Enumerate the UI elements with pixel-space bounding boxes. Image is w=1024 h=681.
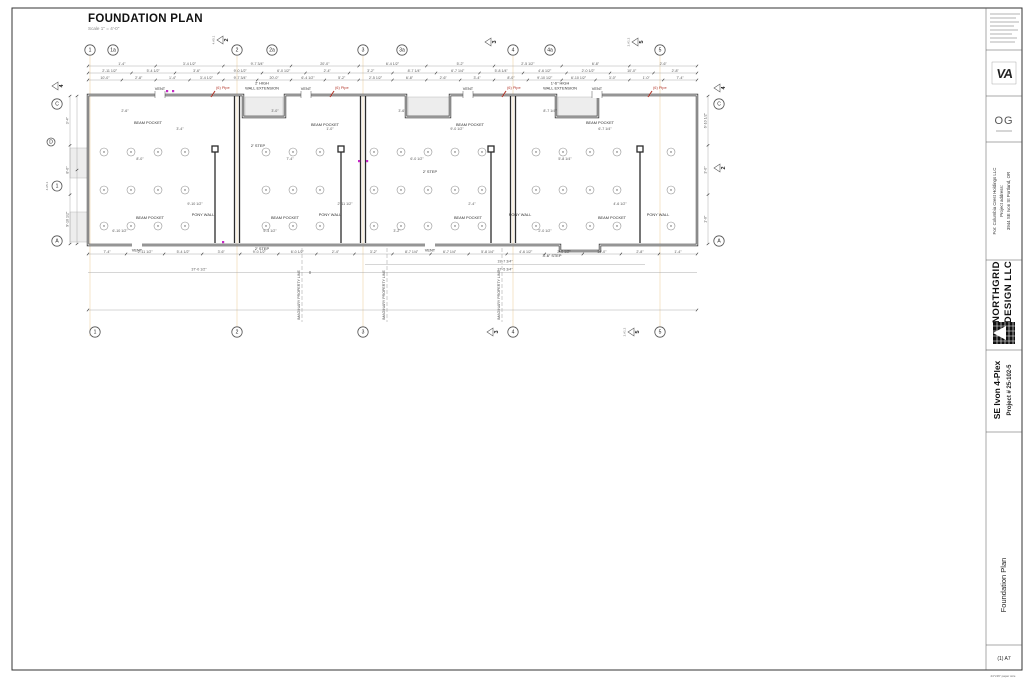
- dimension-text: 1'-4": [169, 76, 177, 80]
- grid-bubble-label: 2: [236, 330, 239, 336]
- section-flag-tag: 2.A1.2: [623, 327, 627, 336]
- dimension-text: 1'-0": [703, 215, 707, 223]
- dimension-text: 7'-4": [286, 157, 294, 161]
- dimension-text: 6'-4 1/2": [386, 62, 400, 66]
- pier-center: [157, 189, 158, 190]
- grid-bubble-label: 3: [362, 330, 365, 336]
- vent-label: VENT: [463, 86, 474, 91]
- dimension-text: 2'-8": [672, 69, 680, 73]
- dimension-text: 5'-2": [338, 76, 346, 80]
- dimension-text: 6'-7 1/4": [443, 250, 457, 254]
- dimension-text: 2'-0 1/2": [582, 69, 596, 73]
- pier-center: [562, 189, 563, 190]
- property-line-label: IMAGINARY PROPERTY LINE: [297, 270, 301, 320]
- pier-center: [670, 151, 671, 152]
- dimension-text: 3'-6": [398, 109, 406, 113]
- sheet-frame: 24"x36" paper size: [12, 8, 1022, 678]
- dimension-text: 5'-2": [457, 62, 465, 66]
- dimension-text: 9'-10 1/2": [187, 202, 203, 206]
- dimension-text: 10'-0": [597, 250, 607, 254]
- pier-center: [373, 225, 374, 226]
- dimension-text: 2'-4": [332, 250, 340, 254]
- dimension-text: 2'-5 1/2": [369, 76, 383, 80]
- dimension-text: 2'-6": [440, 76, 448, 80]
- pier-center: [481, 225, 482, 226]
- project-name: SE Ivon 4-Plex: [992, 360, 1002, 419]
- dimension-text: 2'-4": [324, 69, 332, 73]
- pier-center: [265, 151, 266, 152]
- project-address: 3944 SE Ivon St Portland, OR: [1006, 172, 1011, 230]
- dimension-text: 6'-0 1/2": [291, 250, 305, 254]
- pier-center: [454, 189, 455, 190]
- section-flag-tag: 4.A5.1: [212, 35, 216, 44]
- pier-center: [373, 189, 374, 190]
- dimension-text: 4'-6 1/2": [519, 250, 533, 254]
- dimension-text: 7'-4": [103, 250, 111, 254]
- vent-opening: [301, 92, 311, 98]
- pony-wall-label: PONY WALL: [509, 212, 532, 217]
- pier-center: [130, 225, 131, 226]
- wall-extension-label: WALL EXTENSION: [543, 86, 577, 91]
- utility-marker: [222, 241, 224, 243]
- beam-pocket-label: BEAM POCKET: [136, 215, 165, 220]
- beam-pocket-mark: [338, 146, 344, 152]
- grid-bubble-label: 5: [659, 48, 662, 54]
- dimension-text: 8'-7 1/4": [543, 109, 557, 113]
- pier-center: [184, 225, 185, 226]
- client-name: For: Columbia Crest Holdings LLC: [992, 168, 997, 235]
- dimension-text: 3'-2": [393, 229, 401, 233]
- dimension-text: 3'-6": [193, 69, 201, 73]
- porch-slab: [408, 97, 450, 116]
- pier-center: [535, 151, 536, 152]
- dimension-text: 8'-0": [507, 76, 515, 80]
- dimension-text: 5'-4 1/2": [263, 229, 277, 233]
- property-line-label: IMAGINARY PROPERTY LINE: [382, 270, 386, 320]
- pier-center: [481, 189, 482, 190]
- dimension-text: 8'-7 1/4": [408, 69, 422, 73]
- dimension-text: 2'-11 1/2": [338, 202, 354, 206]
- pier-center: [589, 151, 590, 152]
- pipe-label: (6) Pipe: [335, 85, 349, 90]
- dimension-text: 2'-6": [121, 109, 129, 113]
- project-address-label: Project address:: [999, 185, 1004, 217]
- dimension-text: 5'-4 1/2": [177, 250, 191, 254]
- pier-center: [184, 189, 185, 190]
- section-flag-number: 3: [494, 330, 500, 333]
- wall-extension-label: WALL EXTENSION: [245, 86, 279, 91]
- sheet-number: (1) A7: [997, 656, 1011, 662]
- pony-wall-label: PONY WALL: [319, 212, 342, 217]
- grid-bubble-label: 4: [512, 330, 515, 336]
- dimension-text: 5'-8 1/4": [558, 157, 572, 161]
- vent-opening: [463, 92, 473, 98]
- pipe-label: (6) Pipe: [653, 85, 667, 90]
- pier-center: [481, 151, 482, 152]
- pony-wall-label: PONY WALL: [647, 212, 670, 217]
- pier-center: [589, 189, 590, 190]
- dimension-text: 6'-0 1/2": [277, 69, 291, 73]
- dimension-text: 3'-4 1/2": [183, 62, 197, 66]
- foundation-plan-scale: Scale 1" = 4'-0": [88, 26, 120, 31]
- dimension-text: 20'-0": [270, 76, 280, 80]
- beam-pocket-mark: [212, 146, 218, 152]
- dimension-text: 2'-8": [636, 250, 644, 254]
- section-flag-number: 2: [224, 38, 230, 41]
- pier-center: [562, 225, 563, 226]
- dimension-text: 3'-6": [218, 250, 226, 254]
- beam-pocket-label: BEAM POCKET: [271, 215, 300, 220]
- og-logo: OG: [994, 115, 1013, 127]
- utility-marker: [172, 90, 174, 92]
- vent-label: VENT: [425, 248, 436, 253]
- dimension-text: 6'-10 1/2": [703, 112, 707, 128]
- pier-center: [589, 225, 590, 226]
- grid-bubble-label: 5: [659, 330, 662, 336]
- dimension-text: 1'-4": [674, 250, 682, 254]
- dimension-text: 9'-0 1/2": [450, 127, 464, 131]
- section-flag-number: 5: [635, 330, 641, 333]
- sheet-title: Foundation Plan: [999, 558, 1008, 613]
- paper-size-note: 24"x36" paper size: [991, 674, 1016, 678]
- foundation-plan-title: FOUNDATION PLAN: [88, 13, 203, 25]
- pier-center: [292, 225, 293, 226]
- va-logo: VA: [996, 66, 1015, 81]
- dimension-text: 19'-7 3/4": [497, 260, 513, 264]
- pier-center: [130, 189, 131, 190]
- beam-pocket-mark: [637, 146, 643, 152]
- dimension-text: 6'-8": [592, 62, 600, 66]
- porch-slab: [70, 212, 88, 242]
- pier-center: [670, 189, 671, 190]
- utility-marker: [358, 160, 360, 162]
- beam-pocket-mark: [488, 146, 494, 152]
- pier-center: [535, 189, 536, 190]
- pier-center: [427, 225, 428, 226]
- pier-center: [400, 225, 401, 226]
- pipe-label: (6) Pipe: [216, 85, 230, 90]
- vent-label: VENT: [301, 86, 312, 91]
- porch-slab: [558, 97, 598, 116]
- grid-bubble-label: C: [717, 102, 721, 108]
- dimension-text: 9'-7 3/4": [251, 62, 265, 66]
- property-line-label: IMAGINARY PROPERTY LINE: [497, 270, 501, 320]
- dimension-text: 3'-2": [370, 250, 378, 254]
- grid-bubble-label: 2a: [269, 48, 275, 54]
- pier-center: [265, 225, 266, 226]
- dimension-text: 2'-0 1/2": [557, 250, 571, 254]
- pier-center: [427, 151, 428, 152]
- dimension-text: 2'-8": [135, 76, 143, 80]
- beam-pocket-label: BEAM POCKET: [134, 120, 163, 125]
- pier-center: [454, 151, 455, 152]
- dimension-text: 2'-5 1/2": [521, 62, 535, 66]
- pier-center: [265, 189, 266, 190]
- pier-center: [157, 225, 158, 226]
- pier-center: [157, 151, 158, 152]
- pier-center: [400, 189, 401, 190]
- dimension-text: 2'-6": [660, 62, 668, 66]
- dimension-text: 8'-0": [136, 157, 144, 161]
- grid-bubble-label: C: [55, 102, 59, 108]
- drawing-sheet: 24"x36" paper size VAOGFor: Columbia Cre…: [0, 0, 1024, 681]
- vent-label: VENT: [155, 86, 166, 91]
- pier-center: [184, 151, 185, 152]
- pier-center: [670, 225, 671, 226]
- dimension-text: 1'-0": [326, 127, 334, 131]
- dimension-text: 3'-4": [65, 116, 69, 124]
- dimension-text: 3'-0": [271, 109, 279, 113]
- pier-center: [616, 151, 617, 152]
- pier-center: [130, 151, 131, 152]
- dimension-text: 5'-8 1/4": [495, 69, 509, 73]
- dimension-text: 6'-7 1/4": [598, 127, 612, 131]
- pier-center: [103, 225, 104, 226]
- dimension-text: 2'-4": [468, 202, 476, 206]
- dimension-text: 3'-2": [367, 69, 375, 73]
- dimension-text: 3'-4": [176, 127, 184, 131]
- pier-center: [319, 151, 320, 152]
- pier-center: [616, 225, 617, 226]
- dimension-text: 3'-4": [474, 76, 482, 80]
- section-flag-tag: 2.A1.2: [627, 37, 631, 46]
- beam-pocket-label: BEAM POCKET: [586, 120, 615, 125]
- vent-opening: [592, 92, 602, 98]
- dimension-text: 6'-10 1/2": [112, 229, 128, 233]
- pier-center: [103, 189, 104, 190]
- dimension-text: 6'-8": [406, 76, 414, 80]
- beam-pocket-label: BEAM POCKET: [311, 122, 340, 127]
- porch-slab: [70, 148, 88, 178]
- beam-pocket-label: BEAM POCKET: [598, 215, 627, 220]
- pier-center: [454, 225, 455, 226]
- dimension-text: 3'-0": [703, 166, 707, 174]
- vent-label: VENT: [592, 86, 603, 91]
- dimension-text: 2'-11 1/2": [138, 250, 154, 254]
- dimension-text: 10'-0": [100, 76, 110, 80]
- pipe-label: (6) Pipe: [507, 85, 521, 90]
- dimension-text: 8'-7 1/4": [405, 250, 419, 254]
- section-flag-number: 3: [492, 40, 498, 43]
- section-flag-number: 5: [639, 40, 645, 43]
- dimension-text: 3'-4 1/2": [200, 76, 214, 80]
- dimension-text: 9'-10 1/2": [65, 211, 69, 227]
- pier-center: [562, 151, 563, 152]
- dimension-text: 9'-0 1/2": [234, 69, 248, 73]
- dimension-text: 9'-0 1/2": [253, 250, 267, 254]
- sheet-border: [12, 8, 1022, 670]
- pony-wall-label: PONY WALL: [192, 212, 215, 217]
- section-flag-tag: 4.A5.1: [45, 181, 49, 190]
- grid-bubble-label: 4a: [547, 48, 553, 54]
- pier-center: [373, 151, 374, 152]
- dimension-text: 1'-0": [643, 76, 651, 80]
- dimension-text: 6'-10 1/2": [571, 76, 587, 80]
- grid-bubble-label: 1: [89, 48, 92, 54]
- grid-bubble-label: 1: [56, 184, 59, 190]
- pier-center: [535, 225, 536, 226]
- grid-bubble-label: 4: [512, 48, 515, 54]
- utility-marker: [366, 160, 368, 162]
- dimension-text: 4'-6 1/2": [613, 202, 627, 206]
- pier-center: [400, 151, 401, 152]
- porch-slab: [245, 97, 283, 116]
- grid-bubble-label: 3a: [399, 48, 405, 54]
- dimension-text: 37'-0 1/2": [191, 268, 207, 272]
- project-number: Project # 25-102-5: [1007, 364, 1013, 416]
- pier-center: [427, 189, 428, 190]
- dimension-text: 2'-11 1/2": [102, 69, 118, 73]
- step-label: 2' STEP: [251, 143, 266, 148]
- grid-bubble-label: 1: [94, 330, 97, 336]
- grid-bubble-label: D: [49, 140, 53, 146]
- dimension-text: 7'-4": [677, 76, 685, 80]
- dimension-text: 4'-6 1/2": [538, 69, 552, 73]
- pier-center: [103, 151, 104, 152]
- step-label: 2' STEP: [423, 169, 438, 174]
- vent-opening: [155, 92, 165, 98]
- beam-pocket-label: BEAM POCKET: [454, 215, 483, 220]
- pier-center: [292, 151, 293, 152]
- dimension-text: 10'-0": [627, 69, 637, 73]
- dimension-text: 9'-7 3/4": [234, 76, 248, 80]
- pier-center: [319, 189, 320, 190]
- dimension-text: 1'-4": [118, 62, 126, 66]
- dimension-text: 2'-0 1/2": [538, 229, 552, 233]
- pier-center: [616, 189, 617, 190]
- dimension-text: 6'-0 1/2": [410, 157, 424, 161]
- grid-bubble-label: 3: [362, 48, 365, 54]
- dimension-text: 3'-0": [609, 76, 617, 80]
- dimension-text: 6'-4 1/2": [301, 76, 315, 80]
- pier-center: [292, 189, 293, 190]
- dimension-text: 5'-8 1/4": [481, 250, 495, 254]
- utility-marker: [166, 90, 168, 92]
- firm-name-line2: DESIGN LLC: [1003, 261, 1014, 324]
- firm-name-line1: NORTHGRID: [991, 261, 1002, 323]
- dimension-text: 6'-7 1/4": [451, 69, 465, 73]
- dimension-text: 20'-0": [320, 62, 330, 66]
- grid-bubble-label: 1a: [110, 48, 116, 54]
- pier-center: [319, 225, 320, 226]
- dimension-text: 8'-0": [65, 166, 69, 174]
- section-flag-number: 2: [721, 166, 727, 169]
- grid-bubble-label: 2: [236, 48, 239, 54]
- dimension-text: 9'-10 1/2": [537, 76, 553, 80]
- dimension-text: 5'-4 1/2": [147, 69, 161, 73]
